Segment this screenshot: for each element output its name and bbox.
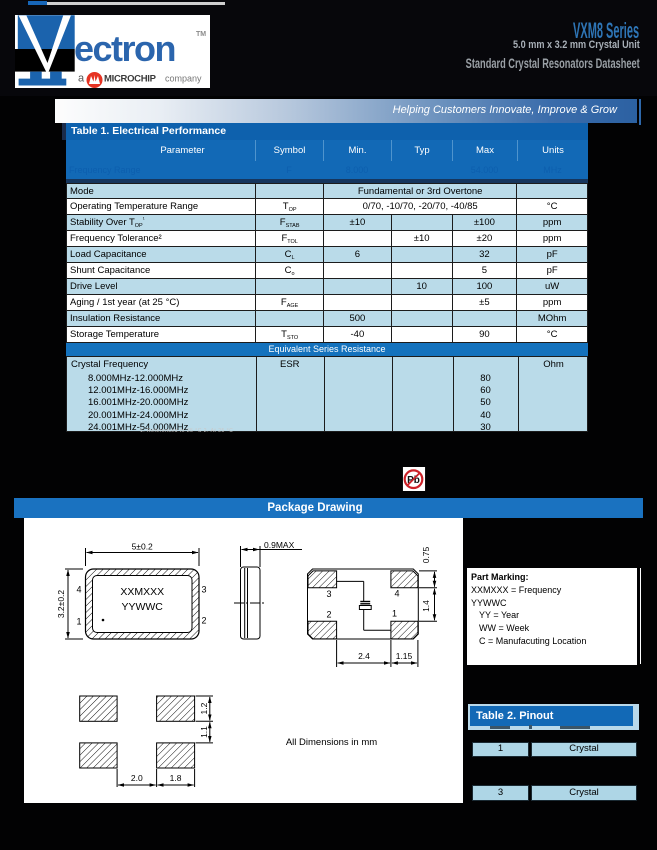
svg-text:3: 3 <box>326 589 331 599</box>
svg-text:MICROCHIP: MICROCHIP <box>104 74 157 85</box>
svg-text:ectron: ectron <box>74 28 175 69</box>
svg-text:2.4: 2.4 <box>358 651 370 661</box>
svg-text:1: 1 <box>76 617 81 627</box>
svg-text:1.15: 1.15 <box>396 651 413 661</box>
svg-text:5±0.2: 5±0.2 <box>132 542 153 552</box>
svg-text:0.75: 0.75 <box>421 546 431 563</box>
svg-text:All Dimensions in mm: All Dimensions in mm <box>286 737 377 748</box>
svg-text:2: 2 <box>201 616 206 626</box>
svg-text:1.1: 1.1 <box>199 726 209 738</box>
svg-text:2.0: 2.0 <box>131 773 143 783</box>
svg-text:1.8: 1.8 <box>170 773 182 783</box>
svg-text:0.9MAX: 0.9MAX <box>264 540 295 550</box>
svg-text:2: 2 <box>326 610 331 620</box>
svg-text:a: a <box>78 73 85 85</box>
svg-text:TM: TM <box>196 31 206 38</box>
svg-text:company: company <box>165 74 202 84</box>
svg-text:3.2±0.2: 3.2±0.2 <box>56 590 66 619</box>
svg-text:4: 4 <box>76 585 81 595</box>
svg-text:1.2: 1.2 <box>199 702 209 714</box>
svg-text:1: 1 <box>392 609 397 619</box>
svg-text:4: 4 <box>394 589 399 599</box>
svg-text:3: 3 <box>201 585 206 595</box>
svg-text:1.4: 1.4 <box>421 600 431 612</box>
svg-text:XXMXXX: XXMXXX <box>120 586 164 598</box>
svg-text:YYWWC: YYWWC <box>121 601 163 613</box>
